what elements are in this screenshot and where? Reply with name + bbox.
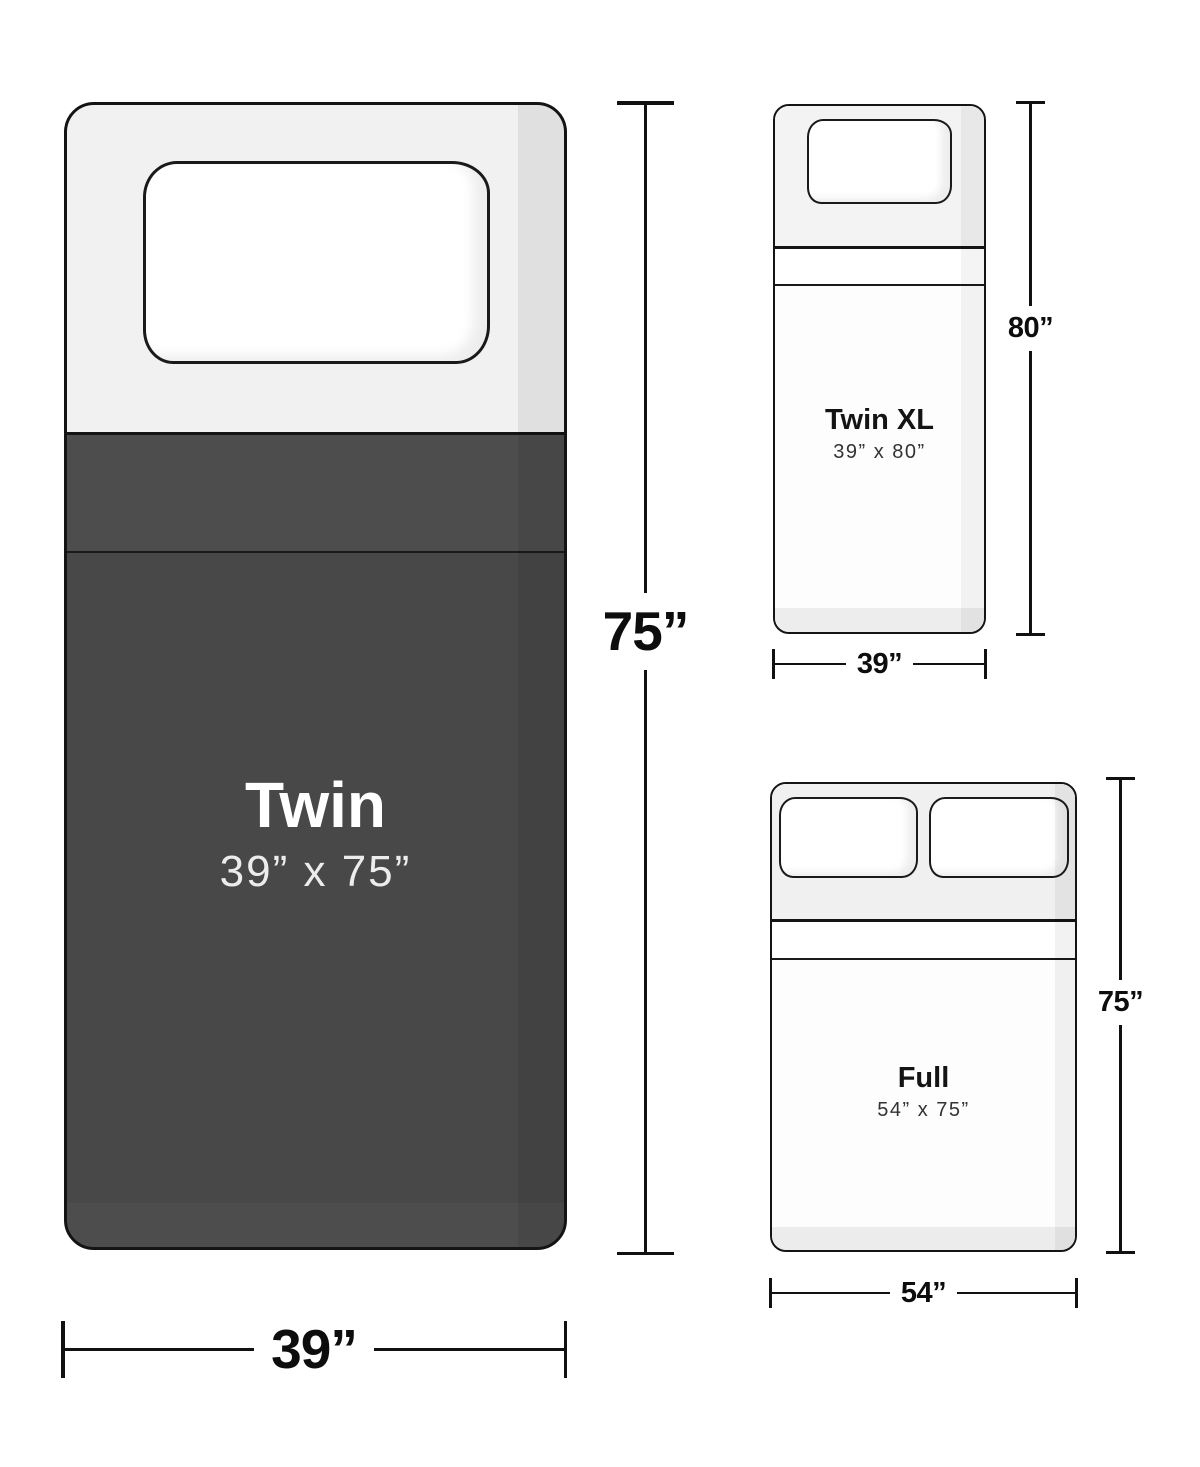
twin-xl-height-dimension: 80”: [1016, 101, 1045, 636]
full-dimensions-label: 54” x 75”: [772, 1100, 1075, 1120]
twin-pillow: [143, 161, 490, 364]
twin-headboard-area: [67, 105, 564, 435]
twin-blanket-bottom-fold: [67, 1203, 564, 1247]
twin-dimensions-label: 39” x 75”: [67, 850, 564, 894]
twin-xl-name-label: Twin XL: [775, 406, 984, 435]
bed-size-diagram: Twin 39” x 75” 75” 39” Twin XL 39” x 80”: [0, 0, 1200, 1467]
twin-width-dimension: 39”: [61, 1321, 567, 1378]
dim-line: [1029, 104, 1032, 306]
dim-line: [374, 1348, 564, 1352]
twin-bed-illustration: Twin 39” x 75”: [64, 102, 567, 1250]
twin-xl-height-value: 80”: [1008, 314, 1053, 343]
full-pillow-left: [779, 797, 918, 878]
twin-xl-width-value: 39”: [857, 650, 902, 679]
dim-line: [772, 1292, 890, 1295]
dim-cap: [1075, 1278, 1078, 1308]
full-sheet-fold: [772, 922, 1075, 960]
twin-height-dimension: 75”: [617, 101, 674, 1255]
full-height-value: 75”: [1098, 988, 1143, 1017]
dim-line: [644, 105, 648, 593]
twin-xl-bottom-edge: [775, 608, 984, 632]
twin-name-label: Twin: [67, 773, 564, 837]
twin-blanket-fold: [67, 435, 564, 553]
full-label-block: Full 54” x 75”: [772, 1064, 1075, 1120]
twin-height-value: 75”: [603, 604, 689, 659]
dim-line: [1119, 780, 1122, 980]
twin-xl-sheet-fold: [775, 249, 984, 286]
dim-line: [775, 663, 846, 666]
dim-line: [913, 663, 984, 666]
full-width-dimension: 54”: [769, 1278, 1078, 1308]
twin-xl-pillow: [807, 119, 952, 204]
twin-xl-label-block: Twin XL 39” x 80”: [775, 406, 984, 462]
full-pillow-right: [929, 797, 1069, 878]
dim-cap: [1016, 633, 1045, 636]
full-headboard-area: [772, 784, 1075, 922]
dim-cap: [1106, 1251, 1135, 1254]
dim-line: [957, 1292, 1075, 1295]
full-height-dimension: 75”: [1106, 777, 1135, 1254]
twin-xl-bed-illustration: Twin XL 39” x 80”: [773, 104, 986, 634]
dim-line: [1119, 1025, 1122, 1251]
dim-cap: [617, 1252, 674, 1256]
twin-xl-width-dimension: 39”: [772, 649, 987, 679]
dim-line: [644, 670, 648, 1252]
dim-line: [65, 1348, 255, 1352]
twin-xl-dimensions-label: 39” x 80”: [775, 442, 984, 462]
dim-cap: [564, 1321, 568, 1378]
full-bottom-edge: [772, 1227, 1075, 1250]
full-bed-illustration: Full 54” x 75”: [770, 782, 1077, 1252]
dim-line: [1029, 351, 1032, 633]
twin-label-block: Twin 39” x 75”: [67, 773, 564, 894]
full-pillow-row: [772, 784, 1075, 878]
twin-width-value: 39”: [271, 1322, 357, 1377]
full-width-value: 54”: [901, 1279, 946, 1308]
full-name-label: Full: [772, 1064, 1075, 1093]
twin-xl-headboard-area: [775, 106, 984, 249]
dim-cap: [984, 649, 987, 679]
